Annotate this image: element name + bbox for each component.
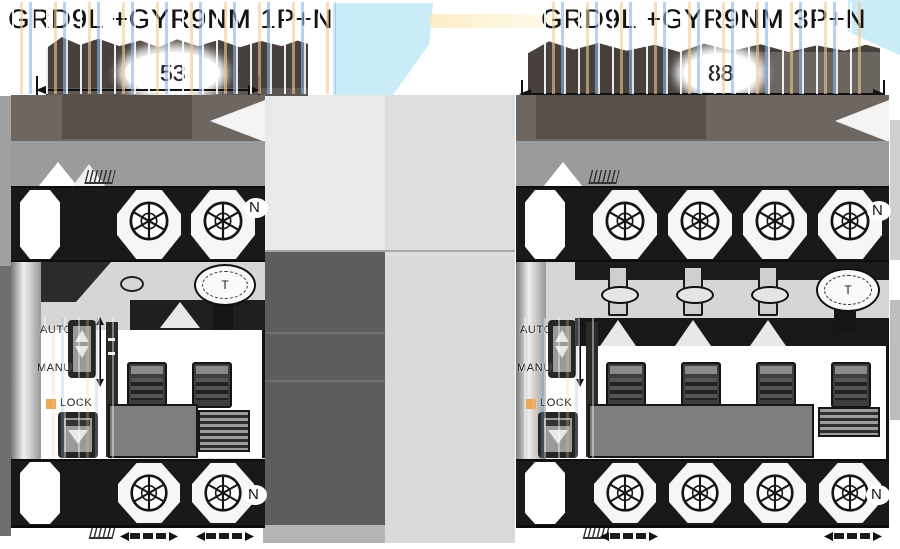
lock-slider-bar (66, 420, 90, 426)
toggle-handle-cap (610, 366, 642, 374)
double-arrow-icon (579, 322, 581, 380)
toggle-handle-ridges (835, 378, 867, 400)
lock-label: LOCK (540, 397, 572, 409)
toggle-handle-ridges (610, 378, 642, 400)
din-clip (824, 530, 882, 542)
lock-label: LOCK (60, 397, 92, 409)
din-clip (196, 530, 254, 542)
lock-indicator (46, 399, 56, 409)
terminal-screw-icon (127, 199, 171, 243)
terminal-screw-icon (603, 199, 647, 243)
terminal-screw-icon (678, 199, 722, 243)
label-plate (108, 404, 198, 458)
glitch-block (263, 95, 385, 252)
neutral-label: N (871, 486, 882, 503)
lock-slider-bar (546, 420, 570, 426)
label-plate (588, 404, 814, 458)
glitch-block (385, 257, 515, 543)
terminal-screw-icon (128, 472, 170, 514)
striped-plate (818, 407, 880, 437)
glitch-block (385, 95, 515, 257)
toggle-handle-ridges (760, 378, 792, 400)
terminal-screw-icon (201, 199, 245, 243)
glitch-block (263, 252, 385, 525)
glitch-patch (333, 3, 433, 95)
test-button: T (816, 268, 880, 312)
toggle-handle-cap (196, 366, 228, 374)
toggle-handle-ridges (685, 378, 717, 400)
test-button-label: T (844, 283, 851, 297)
glitch-block (263, 380, 385, 382)
terminal-screw-icon (202, 472, 244, 514)
toggle-handle-cap (685, 366, 717, 374)
left-device-title: GRD9L +GYR9NM 1P+N (8, 4, 333, 35)
lock-indicator (526, 399, 536, 409)
glitch-facet (108, 338, 115, 341)
terminal-screw-icon (829, 472, 871, 514)
test-button-label: T (221, 278, 228, 292)
glitch-block (890, 120, 900, 260)
hook-detail-icon (120, 276, 144, 292)
divider (516, 525, 889, 528)
glitch-block (0, 96, 11, 266)
terminal-screw-icon (753, 199, 797, 243)
din-rail-column (20, 190, 60, 259)
clip-detail-icon (84, 170, 115, 184)
glitch-facet (108, 352, 115, 355)
glitch-block (263, 332, 385, 334)
toggle-handle-cap (760, 366, 792, 374)
dimension-line (38, 89, 260, 91)
terminal-screw-icon (604, 472, 646, 514)
terminal-screw-icon (754, 472, 796, 514)
divider (11, 525, 265, 528)
connector-link-icon (601, 286, 639, 304)
neutral-label: N (248, 486, 259, 503)
din-rail-column (525, 462, 565, 524)
toggle-handle-cap (835, 366, 867, 374)
din-clip (600, 530, 658, 542)
side-column (11, 262, 41, 459)
terminal-screw-icon (679, 472, 721, 514)
glitch-block (263, 525, 385, 543)
connector-link-icon (676, 286, 714, 304)
din-clip (120, 530, 178, 542)
test-button: T (194, 264, 256, 306)
terminal-screw-icon (828, 199, 872, 243)
right-device-title: GRD9L +GYR9NM 3P+N (541, 4, 866, 35)
manu-label: MANU (517, 362, 552, 374)
connector-link-icon (751, 286, 789, 304)
glitch-block (0, 266, 11, 536)
mount-mark-icon (89, 528, 116, 539)
double-arrow-icon (99, 322, 101, 380)
device-top (536, 95, 706, 139)
toggle-handle-cap (131, 366, 163, 374)
din-rail-column (20, 462, 60, 524)
neutral-label: N (249, 199, 260, 216)
device-top (62, 95, 192, 139)
clip-detail-icon (588, 170, 619, 184)
din-rail-column (525, 190, 565, 259)
striped-plate (198, 410, 250, 452)
toggle-handle-ridges (196, 378, 228, 400)
manu-label: MANU (37, 362, 72, 374)
glitch-block (890, 300, 900, 420)
dimensional-drawing: GRD9L +GYR9NM 1P+N GRD9L +GYR9NM 3P+N 53… (0, 0, 900, 549)
width-dimension-label: 88 (683, 60, 758, 87)
width-dimension-label: 53 (125, 60, 220, 87)
neutral-label: N (872, 202, 883, 219)
toggle-handle-ridges (131, 378, 163, 400)
